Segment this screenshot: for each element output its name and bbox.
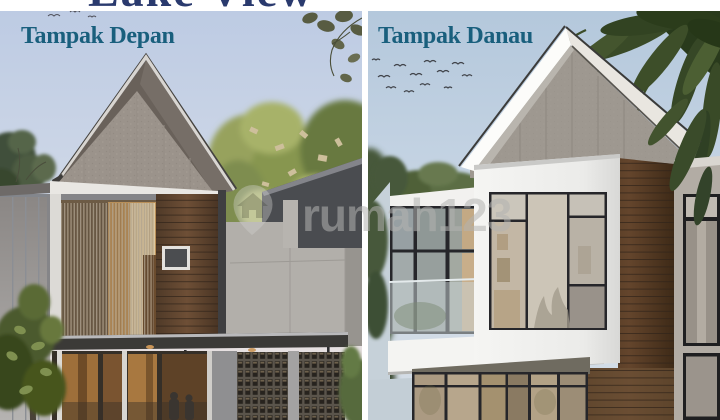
svg-text:rumah123: rumah123 [302, 189, 511, 241]
svg-text:Tampak Danau: Tampak Danau [378, 23, 533, 49]
svg-text:Tampak Depan: Tampak Depan [21, 23, 175, 49]
